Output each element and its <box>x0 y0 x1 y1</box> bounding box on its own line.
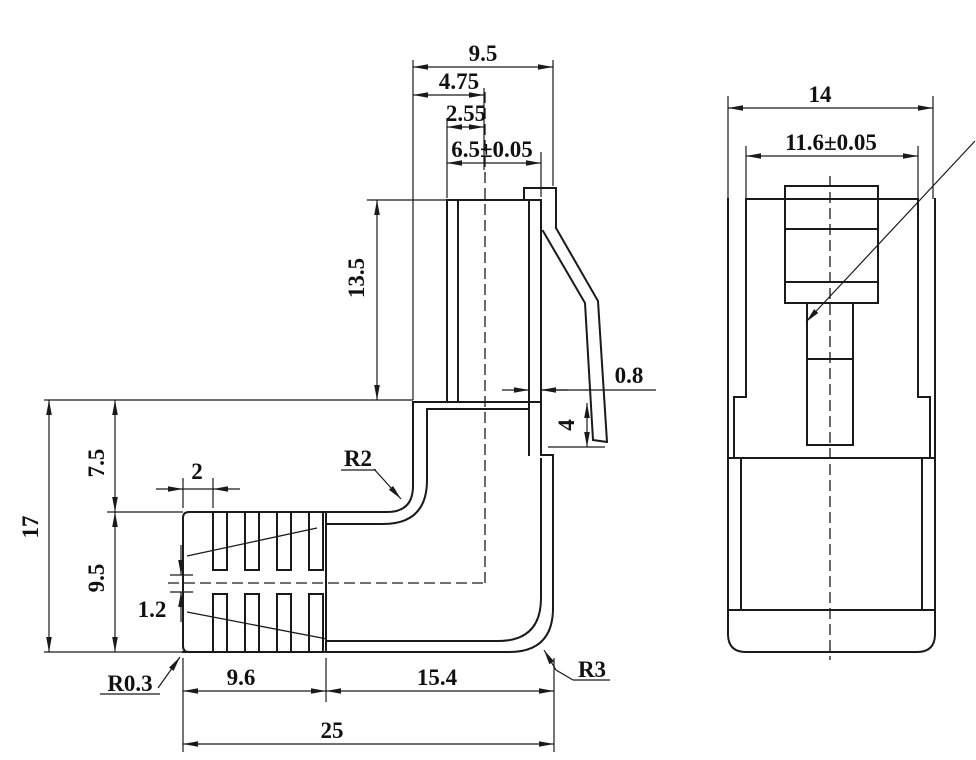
dim-plug-half: 4.75 <box>439 69 479 94</box>
side-body-outline <box>183 402 553 652</box>
dim-boot-length: 9.6 <box>227 665 256 690</box>
front-latch-leader <box>806 141 975 322</box>
dim-overall-length: 25 <box>321 718 344 743</box>
leader-radius-small <box>158 657 180 688</box>
dim-radius-inner: R2 <box>344 446 372 471</box>
dim-latch-drop: 4 <box>554 419 579 431</box>
dim-tip-width: 6.5±0.05 <box>451 137 533 162</box>
dimension-lines <box>49 67 933 744</box>
front-view <box>728 141 975 660</box>
dim-rib-pitch: 2 <box>191 459 203 484</box>
engineering-drawing-svg: 9.5 4.75 2.55 6.5±0.05 13.5 17 7.5 9.5 2… <box>0 0 976 760</box>
dim-upper-height: 7.5 <box>84 449 109 478</box>
leader-radius-outer <box>544 650 573 680</box>
extension-lines-path <box>44 60 933 752</box>
technical-drawing-canvas: 9.5 4.75 2.55 6.5±0.05 13.5 17 7.5 9.5 2… <box>0 0 976 760</box>
leader-radius-inner <box>374 469 401 499</box>
dim-wall-thickness: 0.8 <box>615 363 644 388</box>
front-shell-outline <box>728 199 935 652</box>
dim-radius-outer: R3 <box>578 657 606 682</box>
side-centerlines <box>168 92 485 583</box>
front-latch-outline <box>785 186 878 445</box>
dim-body-length: 15.4 <box>417 665 458 690</box>
side-plug-outline <box>413 200 541 455</box>
dim-lower-height: 9.5 <box>84 564 109 593</box>
side-latch-arm <box>524 188 607 442</box>
dim-radius-small: R0.3 <box>107 671 152 696</box>
dim-front-window: 11.6±0.05 <box>785 130 877 155</box>
side-boot-rib-slots <box>213 512 323 652</box>
dim-overall-height: 17 <box>18 516 43 539</box>
dim-rib-web: 1.2 <box>138 597 167 622</box>
dim-plug-height: 13.5 <box>344 258 369 298</box>
dim-plug-depth: 9.5 <box>469 41 498 66</box>
dim-plug-offset: 2.55 <box>446 101 486 126</box>
extension-lines <box>44 60 933 752</box>
dim-front-width: 14 <box>809 82 833 107</box>
